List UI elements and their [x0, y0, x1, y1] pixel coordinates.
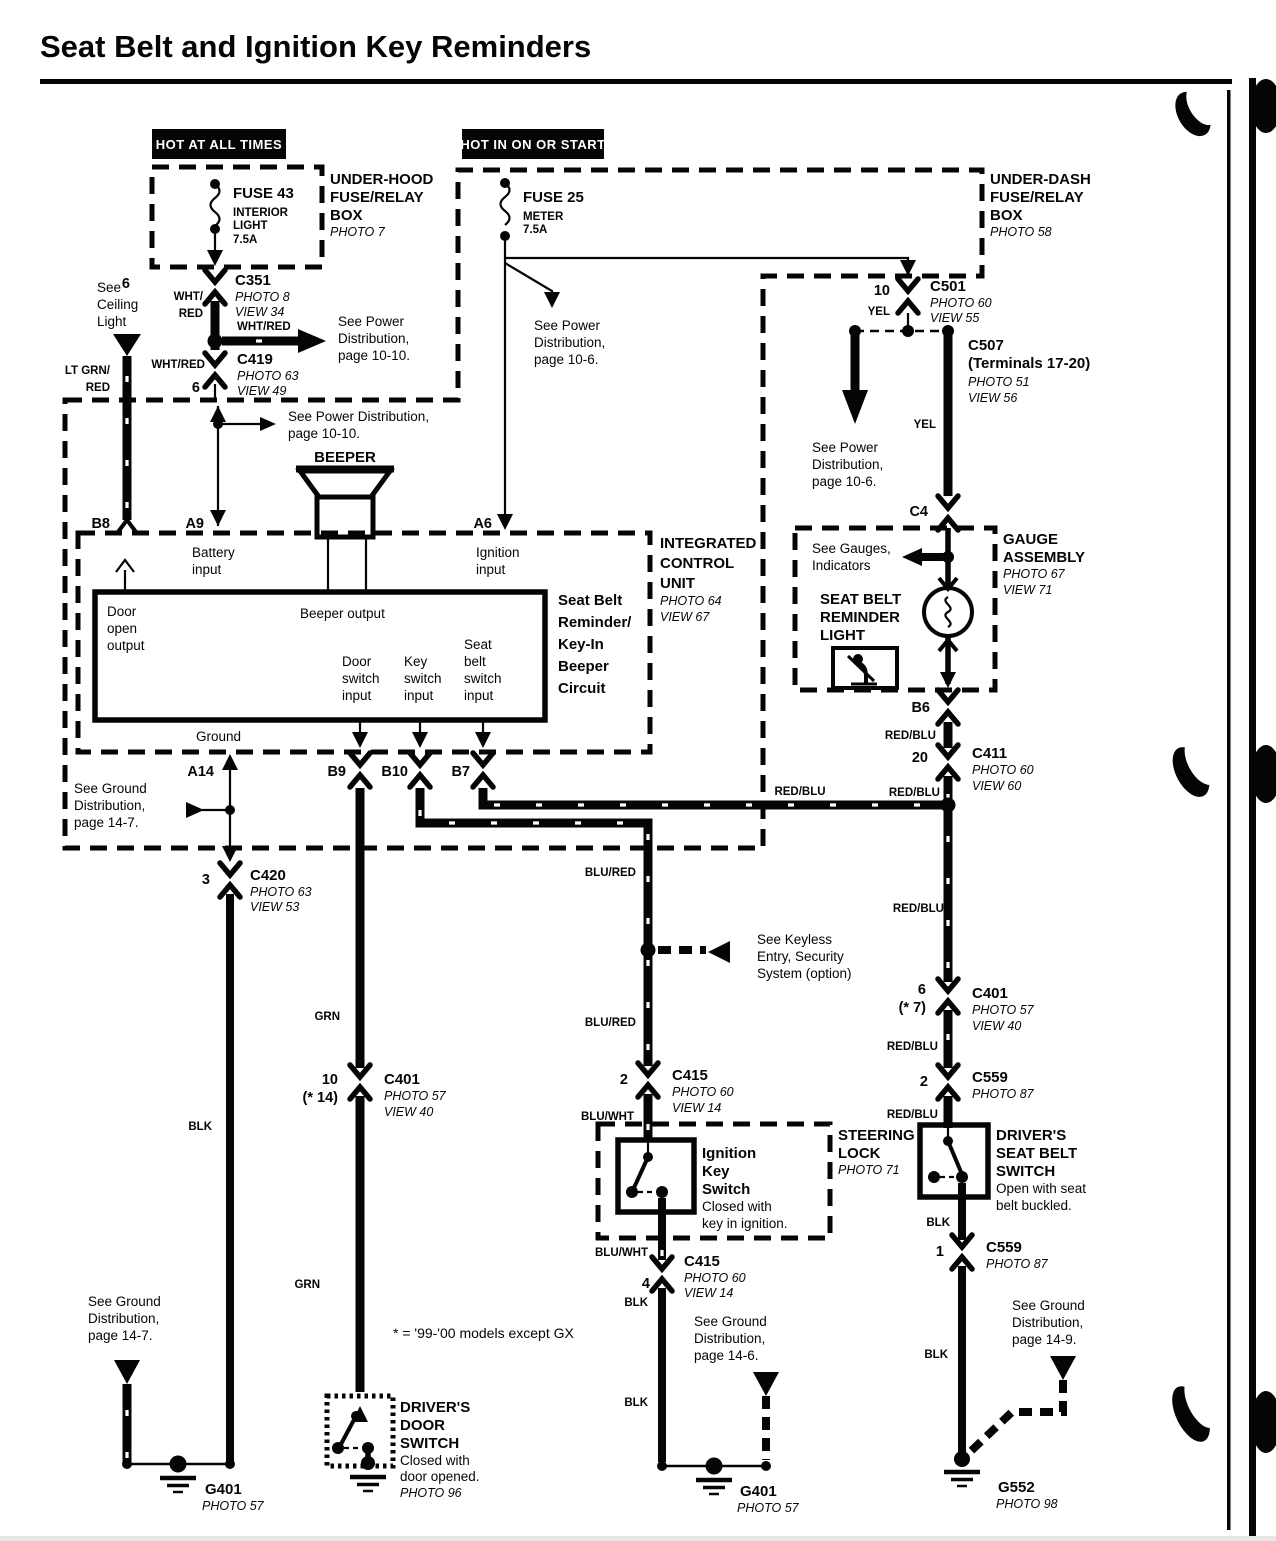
blu-wht-label-2: BLU/WHT — [595, 1247, 648, 1259]
ground-symbol-icon — [160, 1478, 196, 1492]
see-power-106a-1: See Power — [534, 318, 601, 333]
pin-b7-label: B7 — [451, 764, 470, 780]
see-power-106b-1: See Power — [812, 440, 879, 455]
c420-name: C420 — [250, 867, 286, 884]
see-power-1010b-1: See Power Distribution, — [288, 409, 429, 424]
reminder-light-2: REMINDER — [820, 609, 900, 626]
a14-ground-column: See Ground Distribution, page 14-7. 3 C4… — [74, 754, 312, 1462]
fuse43-desc2: LIGHT — [233, 220, 268, 232]
c501-photo: PHOTO 60 — [930, 296, 992, 310]
ground-symbol-icon — [944, 1472, 980, 1486]
steering-lock-photo: PHOTO 71 — [838, 1163, 900, 1177]
seat-belt-switch-title-1: DRIVER'S — [996, 1127, 1066, 1144]
connector-c501: 10 YEL C501 PHOTO 60 VIEW 55 — [868, 278, 992, 325]
icu-door-open-1: Door — [107, 604, 137, 619]
c351-view: VIEW 34 — [235, 305, 284, 319]
c401-right-note: (* 7) — [899, 1000, 927, 1016]
under-dash-region-outline — [65, 170, 982, 848]
icu-view: VIEW 67 — [660, 610, 710, 624]
seat-belt-ignition-reminder-diagram: Seat Belt and Ignition Key Reminders HOT… — [0, 0, 1276, 1536]
ign-key-switch-desc-1: Closed with — [702, 1199, 772, 1214]
power-dist-arrow-icon — [298, 329, 326, 353]
red-label: RED — [179, 308, 203, 320]
blk-label-mid-2: BLK — [624, 1397, 648, 1409]
seat-belt-switch-desc-1: Open with seat — [996, 1181, 1086, 1196]
under-dash-fuse-box-label: UNDER-DASH FUSE/RELAY BOX PHOTO 58 — [990, 171, 1091, 239]
c559-bottom-pin: 1 — [936, 1244, 944, 1260]
door-open-output-arrow-icon — [116, 560, 134, 592]
c559-bottom-connector-icon — [952, 1235, 972, 1269]
c411-pin: 20 — [912, 750, 928, 766]
underdash-label-3: BOX — [990, 207, 1023, 224]
seat-belt-switch-desc-2: belt buckled. — [996, 1198, 1072, 1213]
c415-bottom-name: C415 — [684, 1253, 720, 1270]
icu-door-sw-2: switch — [342, 671, 380, 686]
c415-bottom-connector-icon — [652, 1257, 672, 1291]
c401-right-pin: 6 — [918, 982, 926, 998]
b8-entry-chevron-icon — [118, 520, 136, 532]
underhood-label-3: BOX — [330, 207, 363, 224]
see-ground-149-2: Distribution, — [1012, 1315, 1083, 1330]
icu-ground: Ground — [196, 729, 241, 744]
b7-connector-icon — [473, 753, 493, 787]
c501-view: VIEW 55 — [930, 311, 979, 325]
door-switch-desc-2: door opened. — [400, 1469, 480, 1484]
see-ground-147a-2: Distribution, — [74, 798, 145, 813]
see-ground-147a-3: page 14-7. — [74, 815, 139, 830]
see-power-1010a-1: See Power — [338, 314, 405, 329]
b10-connector-icon — [410, 753, 430, 787]
fuse43-amp: 7.5A — [233, 234, 257, 246]
c559-top-connector-icon — [938, 1065, 958, 1099]
blu-red-label-2: BLU/RED — [585, 1017, 636, 1029]
c401-right-photo: PHOTO 57 — [972, 1003, 1035, 1017]
c419-name: C419 — [237, 351, 273, 368]
blk-label-right-2: BLK — [924, 1349, 948, 1361]
c501-wire-color: YEL — [868, 306, 890, 318]
ground-symbol-icon — [350, 1477, 386, 1491]
see-power-106b-2: Distribution, — [812, 457, 883, 472]
gauge-label-1: GAUGE — [1003, 531, 1058, 548]
icu-circuit-2: Reminder/ — [558, 614, 632, 631]
gauge-view: VIEW 71 — [1003, 583, 1052, 597]
icu-belt-sw-3: switch — [464, 671, 502, 686]
c420-connector-icon — [220, 863, 240, 897]
blu-red-label-1: BLU/RED — [585, 867, 636, 879]
icu-name-1: INTEGRATED — [660, 535, 757, 552]
g401-mid-name: G401 — [740, 1483, 777, 1500]
icu-circuit-4: Beeper — [558, 658, 609, 675]
c4-connector-icon — [938, 496, 958, 530]
icu-ignition-1: Ignition — [476, 545, 520, 560]
icu-photo: PHOTO 64 — [660, 594, 722, 608]
ign-key-switch-3: Switch — [702, 1181, 750, 1198]
c415-bottom-branch: BLU/WHT 4 C415 PHOTO 60 VIEW 14 BLK BLK … — [595, 1198, 800, 1515]
g552-name: G552 — [998, 1479, 1035, 1496]
c401-left-note: (* 14) — [303, 1090, 339, 1106]
lt-grn-red-label: RED — [86, 382, 110, 394]
c419-view: VIEW 49 — [237, 384, 286, 398]
c420-view: VIEW 53 — [250, 900, 299, 914]
pin-b10-label: B10 — [381, 764, 408, 780]
fuse25-icon — [500, 178, 510, 241]
yel-branch-power-dist: See Power Distribution, page 10-6. — [812, 331, 883, 489]
icu-key-sw-2: switch — [404, 671, 442, 686]
c411-photo: PHOTO 60 — [972, 763, 1034, 777]
hot-at-all-times-banner: HOT AT ALL TIMES — [152, 129, 286, 159]
wht-red-label-2: WHT/RED — [151, 359, 205, 371]
beeper: BEEPER — [296, 449, 394, 592]
c420-photo: PHOTO 63 — [250, 885, 312, 899]
icu-battery-2: input — [192, 562, 222, 577]
red-blu-b7-wire: RED/BLU — [483, 786, 944, 805]
underdash-label-1: UNDER-DASH — [990, 171, 1091, 188]
fuse43-name: FUSE 43 — [233, 185, 294, 202]
power-dist-small-arrow-icon — [260, 417, 276, 431]
underdash-label-2: FUSE/RELAY — [990, 189, 1084, 206]
c419-pin: 6 — [192, 380, 200, 396]
gauges-branch-arrow-icon — [902, 548, 948, 566]
c351-photo: PHOTO 8 — [235, 290, 290, 304]
c420-pin: 3 — [202, 872, 210, 888]
c559-top-pin: 2 — [920, 1074, 928, 1090]
see-ground-147b-2: Distribution, — [88, 1311, 159, 1326]
steering-lock: Ignition Key Switch Closed with key in i… — [598, 1124, 915, 1238]
c351-name: C351 — [235, 272, 271, 289]
pin-a14-label: A14 — [187, 764, 214, 780]
c415-top-pin: 2 — [620, 1072, 628, 1088]
red-blu-label-6: RED/BLU — [774, 786, 825, 798]
c415-top-photo: PHOTO 60 — [672, 1085, 734, 1099]
c415-top-name: C415 — [672, 1067, 708, 1084]
door-switch-photo: PHOTO 96 — [400, 1486, 462, 1500]
icu-circuit-5: Circuit — [558, 680, 606, 697]
c415-top-connector-icon — [638, 1063, 658, 1097]
underhood-label-2: FUSE/RELAY — [330, 189, 424, 206]
icu-key-sw-3: input — [404, 688, 434, 703]
steering-lock-1: STEERING — [838, 1127, 915, 1144]
fuse25-name: FUSE 25 — [523, 189, 584, 206]
underdash-photo: PHOTO 58 — [990, 225, 1052, 239]
see-keyless-3: System (option) — [757, 966, 852, 981]
see-ceiling-3: Light — [97, 314, 127, 329]
hot-in-on-or-start-label: HOT IN ON OR START — [460, 137, 605, 152]
down-arrow-icon — [1050, 1356, 1076, 1380]
red-blu-label-4: RED/BLU — [887, 1041, 938, 1053]
c401-left-view: VIEW 40 — [384, 1105, 433, 1119]
ign-key-switch-1: Ignition — [702, 1145, 756, 1162]
icu-name-3: UNIT — [660, 575, 695, 592]
c501-name: C501 — [930, 278, 966, 295]
see-ceiling-2: Ceiling — [97, 297, 138, 312]
c401-right-connector-icon — [938, 979, 958, 1013]
hot-in-on-or-start-banner: HOT IN ON OR START — [460, 129, 605, 159]
reminder-light-3: LIGHT — [820, 627, 865, 644]
see-ground-146-1: See Ground — [694, 1314, 767, 1329]
page-binding-marks — [1164, 78, 1276, 1536]
seat-belt-switch-title-2: SEAT BELT — [996, 1145, 1077, 1162]
keyless-ref-arrow-icon — [708, 941, 730, 963]
icu-door-open-3: output — [107, 638, 145, 653]
c351-connector-icon — [205, 270, 225, 304]
g401-mid-photo: PHOTO 57 — [737, 1501, 800, 1515]
g401-left-photo: PHOTO 57 — [202, 1499, 265, 1513]
hot-at-all-times-label: HOT AT ALL TIMES — [156, 137, 282, 152]
see-ground-147a-1: See Ground — [74, 781, 147, 796]
icu-name-2: CONTROL — [660, 555, 734, 572]
see-power-1010a-3: page 10-10. — [338, 348, 410, 363]
red-blu-label-1: RED/BLU — [885, 730, 936, 742]
connector-c507: C507 (Terminals 17-20) PHOTO 51 VIEW 56 — [849, 313, 1090, 405]
icu-belt-sw-4: input — [464, 688, 494, 703]
wht-label: WHT/ — [174, 291, 204, 303]
down-arrow-icon — [842, 390, 868, 424]
c559-top-photo: PHOTO 87 — [972, 1087, 1035, 1101]
c4-pin-label: C4 — [909, 504, 928, 520]
icu-belt-sw-2: belt — [464, 654, 486, 669]
gauge-photo: PHOTO 67 — [1003, 567, 1066, 581]
see-ground-149-1: See Ground — [1012, 1298, 1085, 1313]
blu-wht-label-1: BLU/WHT — [581, 1111, 634, 1123]
yel-wire-to-gauge: YEL — [914, 331, 948, 496]
c351-c419-branch: 6 WHT/ RED C351 PHOTO 8 VIEW 34 WHT/RED … — [122, 270, 410, 400]
see-power-106a-2: Distribution, — [534, 335, 605, 350]
c501-pin: 10 — [874, 283, 890, 299]
icu-circuit-3: Key-In — [558, 636, 604, 653]
under-hood-fuse-box: FUSE 43 INTERIOR LIGHT 7.5A UNDER-HOOD F… — [152, 167, 433, 267]
wht-red-label-1: WHT/RED — [237, 321, 291, 333]
see-ground-149-3: page 14-9. — [1012, 1332, 1077, 1347]
see-keyless-1: See Keyless — [757, 932, 832, 947]
c415-bottom-photo: PHOTO 60 — [684, 1271, 746, 1285]
steering-lock-2: LOCK — [838, 1145, 881, 1162]
b6-connector-icon — [938, 690, 958, 724]
door-switch-3: SWITCH — [400, 1435, 459, 1452]
ceiling-light-branch: See Ceiling Light LT GRN/ RED — [65, 280, 141, 532]
see-gauges-1: See Gauges, — [812, 541, 891, 556]
b9-connector-icon — [350, 753, 370, 787]
beeper-label: BEEPER — [314, 449, 376, 466]
c401-left-photo: PHOTO 57 — [384, 1089, 447, 1103]
grn-b9-wire: GRN 10 (* 14) C401 PHOTO 57 VIEW 40 GRN — [294, 788, 446, 1392]
c411-view: VIEW 60 — [972, 779, 1021, 793]
icu-door-open-2: open — [107, 621, 137, 636]
wiring-diagram-page: Seat Belt and Ignition Key Reminders HOT… — [0, 0, 1276, 1536]
see-keyless-2: Entry, Security — [757, 949, 844, 964]
icu-door-sw-3: input — [342, 688, 372, 703]
see-ground-147b-1: See Ground — [88, 1294, 161, 1309]
reminder-light-1: SEAT BELT — [820, 591, 901, 608]
c419-photo: PHOTO 63 — [237, 369, 299, 383]
gauge-label-2: ASSEMBLY — [1003, 549, 1085, 566]
pin-a6-label: A6 — [473, 516, 492, 532]
c401-left-connector-icon — [350, 1065, 370, 1099]
c415-top-view: VIEW 14 — [672, 1101, 721, 1115]
ign-key-switch-2: Key — [702, 1163, 730, 1180]
grn-label-2: GRN — [294, 1279, 320, 1291]
pin-b8-label: B8 — [91, 516, 110, 532]
red-blu-label-5: RED/BLU — [887, 1109, 938, 1121]
see-ground-146-3: page 14-6. — [694, 1348, 759, 1363]
blu-red-b10-wire: BLU/RED See Keyless Entry, Security Syst… — [420, 788, 852, 1142]
icu-ignition-2: input — [476, 562, 506, 577]
c419-connector-icon — [205, 353, 225, 387]
blk-label-mid-1: BLK — [624, 1297, 648, 1309]
gauge-assembly: C4 See Gauges, Indicators SEAT BELT REMI… — [795, 496, 1085, 724]
fuse43-desc1: INTERIOR — [233, 207, 289, 219]
seat-belt-indicator-icon — [833, 648, 897, 688]
door-switch-desc-1: Closed with — [400, 1453, 470, 1468]
c559-top-name: C559 — [972, 1069, 1008, 1086]
c401-right-view: VIEW 40 — [972, 1019, 1021, 1033]
c507-name: C507 — [968, 337, 1004, 354]
c401-left-name: C401 — [384, 1071, 420, 1088]
blk-label-left: BLK — [188, 1121, 212, 1133]
c351-pin: 6 — [122, 276, 130, 292]
c411-name: C411 — [972, 745, 1007, 762]
c559-bottom-photo: PHOTO 87 — [986, 1257, 1049, 1271]
ground-symbol-icon — [696, 1480, 732, 1494]
fuse25-desc: METER — [523, 211, 564, 223]
ign-key-switch-desc-2: key in ignition. — [702, 1216, 788, 1231]
icu-door-sw-1: Door — [342, 654, 372, 669]
page-title: Seat Belt and Ignition Key Reminders — [40, 29, 591, 64]
c507-view: VIEW 56 — [968, 391, 1017, 405]
asterisk-note: * = '99-'00 models except GX — [393, 1325, 574, 1341]
drivers-door-switch: DRIVER'S DOOR SWITCH Closed with door op… — [327, 1396, 480, 1500]
c411-connector-icon — [938, 745, 958, 779]
c401-left-pin: 10 — [322, 1072, 338, 1088]
grn-label-1: GRN — [314, 1011, 340, 1023]
ground-ref-arrow-icon — [186, 802, 204, 818]
ground-g401-left: See Ground Distribution, page 14-7. G401… — [88, 1294, 265, 1513]
see-ground-146-2: Distribution, — [694, 1331, 765, 1346]
seat-belt-switch-title-3: SWITCH — [996, 1163, 1055, 1180]
down-arrow-icon — [113, 334, 141, 356]
door-switch-2: DOOR — [400, 1417, 445, 1434]
underhood-label-1: UNDER-HOOD — [330, 171, 433, 188]
see-gauges-2: Indicators — [812, 558, 871, 573]
title-rule — [40, 79, 1232, 84]
blk-label-right-1: BLK — [926, 1217, 950, 1229]
g552-photo: PHOTO 98 — [996, 1497, 1058, 1511]
see-ground-147b-3: page 14-7. — [88, 1328, 153, 1343]
beeper-horn-icon — [300, 471, 390, 497]
c507-terminals: (Terminals 17-20) — [968, 355, 1090, 372]
lt-grn-label: LT GRN/ — [65, 365, 111, 377]
icu-key-sw-1: Key — [404, 654, 428, 669]
pin-b9-label: B9 — [327, 764, 346, 780]
yel-wire-label: YEL — [914, 419, 936, 431]
fuse25-amp: 7.5A — [523, 224, 547, 236]
see-power-1010a-2: Distribution, — [338, 331, 409, 346]
underhood-photo: PHOTO 7 — [330, 225, 386, 239]
see-power-106b-3: page 10-6. — [812, 474, 877, 489]
red-blu-right-column: RED/BLU 20 C411 PHOTO 60 VIEW 60 RED/BLU… — [885, 722, 1035, 1128]
red-blu-label-2: RED/BLU — [889, 787, 940, 799]
icu-output-arrows — [352, 720, 491, 748]
c401-right-name: C401 — [972, 985, 1008, 1002]
c415-bottom-pin: 4 — [642, 1276, 650, 1292]
g401-left-name: G401 — [205, 1481, 242, 1498]
c415-bottom-view: VIEW 14 — [684, 1286, 733, 1300]
down-arrow-icon — [753, 1372, 779, 1396]
icu-battery-1: Battery — [192, 545, 235, 560]
icu-circuit-1: Seat Belt — [558, 592, 622, 609]
red-blu-label-3: RED/BLU — [893, 903, 944, 915]
a6-arrow-icon — [497, 514, 513, 530]
pin-a9-label: A9 — [185, 516, 204, 532]
see-power-106a-3: page 10-6. — [534, 352, 599, 367]
door-switch-1: DRIVER'S — [400, 1399, 470, 1416]
c559-bottom-name: C559 — [986, 1239, 1022, 1256]
icu-beeper-output: Beeper output — [300, 606, 385, 621]
see-ceiling-1: See — [97, 280, 121, 295]
pin-b6-label: B6 — [911, 700, 930, 716]
integrated-control-unit: Battery input Ignition input Door open o… — [78, 516, 757, 787]
down-arrow-icon — [114, 1360, 140, 1384]
c507-photo: PHOTO 51 — [968, 375, 1030, 389]
fuse43-icon — [207, 179, 223, 266]
icu-belt-sw-1: Seat — [464, 637, 492, 652]
see-power-1010b-2: page 10-10. — [288, 426, 360, 441]
